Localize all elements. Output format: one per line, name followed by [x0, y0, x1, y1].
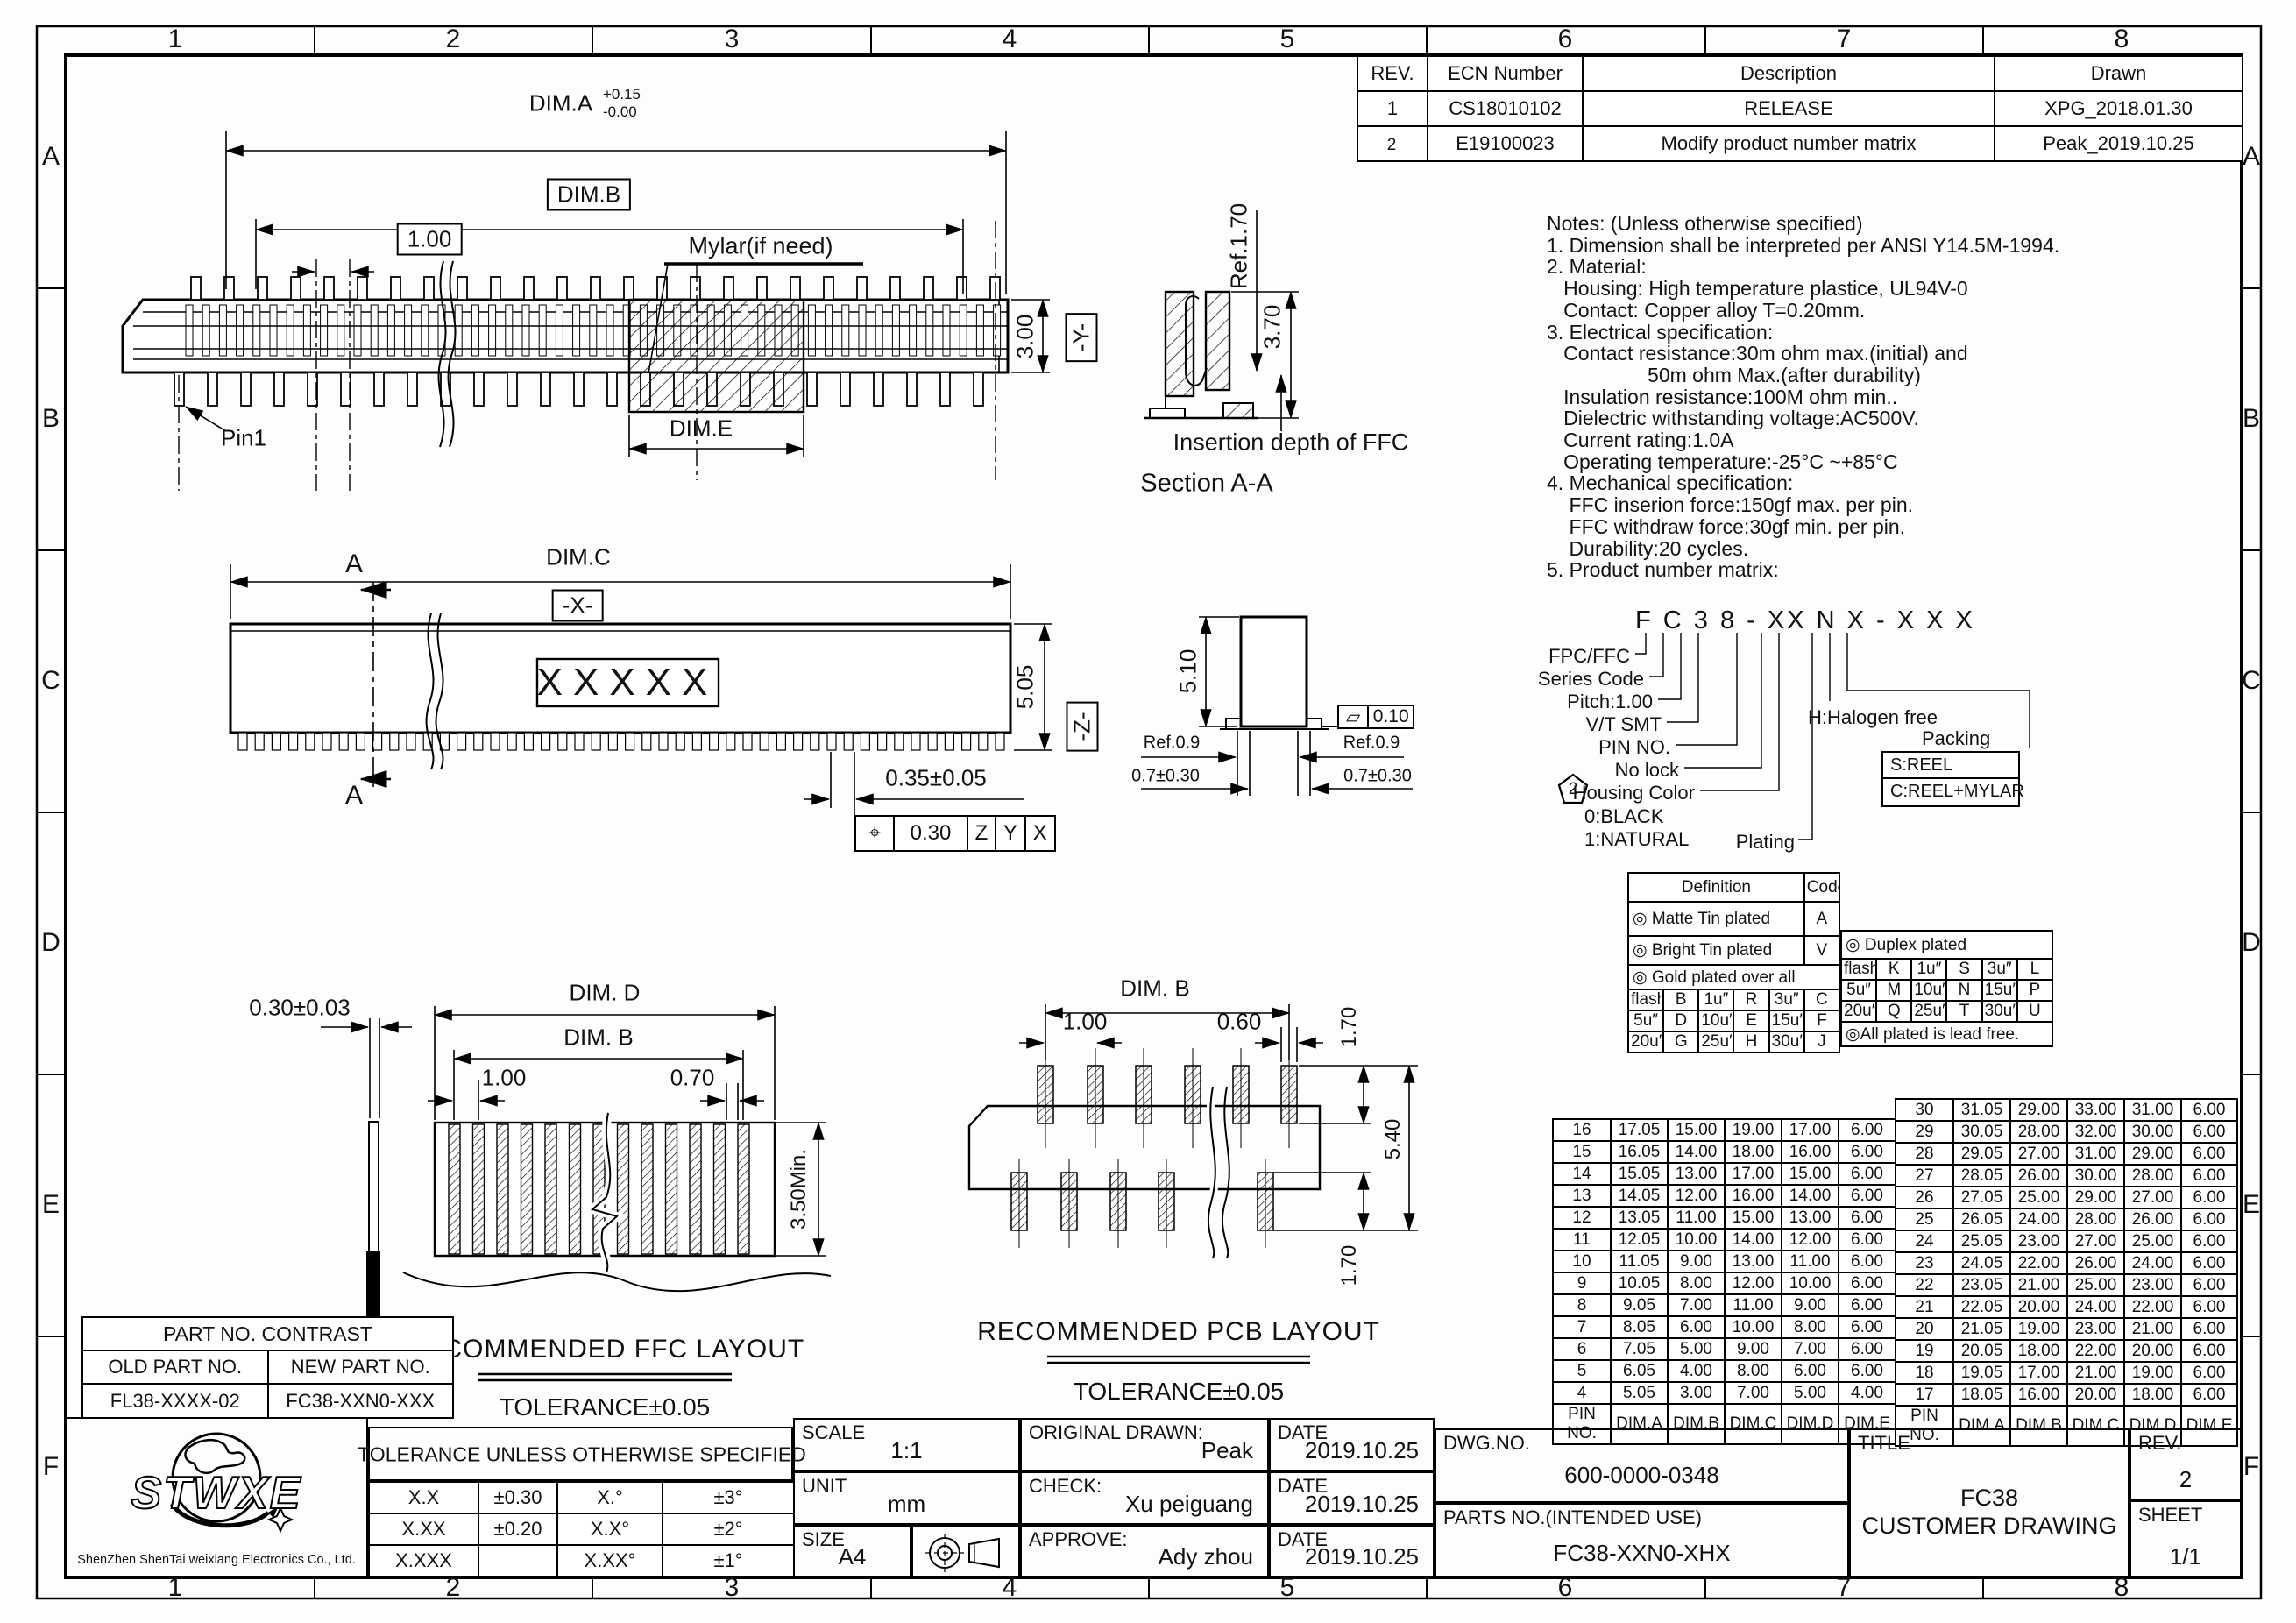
table-cell: 15u″	[1769, 1010, 1804, 1031]
zone-row: D	[41, 928, 60, 958]
check-label: CHECK:	[1029, 1475, 1102, 1498]
table-cell: 3u″	[1769, 989, 1804, 1010]
table-cell: X.XXX	[369, 1545, 478, 1577]
table-cell: 6.00	[2181, 1318, 2237, 1340]
parts-no-label: PARTS NO.(INTENDED USE)	[1443, 1506, 1702, 1529]
table-cell: 15.00	[1668, 1119, 1725, 1141]
table-cell: 17	[1896, 1384, 1953, 1406]
table-cell: 28.00	[2067, 1208, 2124, 1230]
matrix-code: F C 3 8 - XX N X - X X X	[1635, 606, 1975, 635]
revision-rev: 1	[1357, 91, 1428, 126]
pcb-pitch-label: 1.00	[1063, 1009, 1108, 1036]
table-cell: 8	[1553, 1294, 1611, 1316]
matrix-label-packing: Packing	[1922, 727, 1990, 750]
table-cell	[478, 1545, 557, 1577]
table-cell: 23.00	[2124, 1274, 2181, 1296]
note-line: 2. Material:	[1547, 256, 2059, 278]
table-cell: 20.05	[1953, 1340, 2010, 1362]
table-cell: 5	[1553, 1360, 1611, 1382]
note-line: Housing: High temperature plastice, UL94…	[1547, 278, 2059, 300]
revision-ecn: E19100023	[1428, 126, 1583, 161]
matrix-label-halogen: H:Halogen free	[1808, 706, 1938, 729]
flatness-value: 0.10	[1369, 706, 1413, 727]
table-cell: 6.00	[1839, 1272, 1896, 1294]
zone-row: E	[2243, 1190, 2260, 1220]
table-row: 1112.0510.0014.0012.006.00	[1553, 1229, 1896, 1251]
table-cell: 23.05	[1953, 1274, 2010, 1296]
table-cell: 1u″	[1911, 959, 1946, 980]
unit-value: mm	[795, 1491, 1018, 1518]
table-cell: 15u″	[1982, 980, 2017, 1001]
table-cell: 30.00	[2067, 1165, 2124, 1187]
table-cell: 7	[1553, 1316, 1611, 1338]
table-cell: 6.00	[1839, 1163, 1896, 1185]
table-cell: 15.00	[1725, 1207, 1782, 1229]
table-cell: 14.00	[1668, 1141, 1725, 1163]
table-cell: 6.00	[2181, 1143, 2237, 1165]
ffc-tolerance-note: TOLERANCE±0.05	[500, 1393, 711, 1421]
pcb-span-label: 5.40	[1381, 1119, 1406, 1160]
rev-value: 2	[2131, 1466, 2240, 1493]
datum-z-label: -Z-	[1067, 701, 1099, 751]
parts-no-value: FC38-XXN0-XHX	[1436, 1540, 1847, 1567]
table-cell: 6	[1553, 1338, 1611, 1360]
table-cell: 6.00	[1839, 1294, 1896, 1316]
table-cell: C	[1804, 989, 1839, 1010]
table-cell: 6.00	[1839, 1119, 1896, 1141]
top-height-label: 3.00	[1012, 315, 1039, 359]
zone-row: E	[42, 1190, 60, 1220]
table-cell: 12.00	[1725, 1272, 1782, 1294]
table-cell: 16.05	[1611, 1141, 1668, 1163]
table-cell: 12.00	[1668, 1185, 1725, 1207]
table-row: flashB1u″R3u″C	[1628, 989, 1839, 1010]
ffc-min-length-label: 3.50Min.	[787, 1149, 811, 1230]
lead-left-label: 0.7±0.30	[1131, 767, 1200, 787]
table-row: 89.057.0011.009.006.00	[1553, 1294, 1896, 1316]
table-cell: 5.00	[1668, 1338, 1725, 1360]
table-cell: 9.05	[1611, 1294, 1668, 1316]
table-cell: 22.05	[1953, 1296, 2010, 1318]
table-cell: 14.00	[1782, 1185, 1839, 1207]
table-cell: 18.00	[1725, 1141, 1782, 1163]
depth-label: 3.70	[1259, 305, 1286, 350]
table-cell: 24.00	[2067, 1296, 2124, 1318]
matrix-label-housing: Housing Color	[1502, 782, 1695, 804]
dim-c-label: DIM.C	[546, 544, 611, 571]
table-cell: 19.00	[2124, 1362, 2181, 1384]
original-drawn-value: Peak	[1201, 1437, 1253, 1464]
table-cell: 24	[1896, 1230, 1953, 1252]
table-cell: 28.00	[2010, 1121, 2067, 1143]
table-cell: 10u″	[1698, 1010, 1733, 1031]
matrix-pentagon-number: 2	[1569, 780, 1578, 799]
dim-b-label: DIM.B	[547, 179, 631, 211]
revision-desc: RELEASE	[1583, 91, 1995, 126]
approve-label: APPROVE:	[1029, 1528, 1127, 1551]
table-row: E19100023 Modify product number matrix P…	[1357, 126, 2243, 161]
datum-y-label: -Y-	[1066, 313, 1098, 362]
table-cell: J	[1804, 1031, 1839, 1052]
ref-right-label: Ref.0.9	[1343, 734, 1400, 754]
table-cell: 29.00	[2010, 1099, 2067, 1121]
table-cell: 24.00	[2010, 1208, 2067, 1230]
table-cell: 26.00	[2067, 1252, 2124, 1274]
table-cell: 18.00	[2010, 1340, 2067, 1362]
table-cell: N	[1946, 980, 1981, 1001]
table-cell: 6.00	[2181, 1208, 2237, 1230]
table-cell: 6.00	[1839, 1360, 1896, 1382]
table-cell: 21.00	[2010, 1274, 2067, 1296]
table-cell: 5u″	[1628, 1010, 1663, 1031]
table-cell: 8.00	[1782, 1316, 1839, 1338]
pin-dimension-table-left: 1617.0515.0019.0017.006.001516.0514.0018…	[1552, 1118, 1896, 1445]
table-cell: E	[1733, 1010, 1768, 1031]
marking-placeholder: XXXXX	[537, 661, 719, 705]
table-cell: 6.00	[2181, 1296, 2237, 1318]
zone-row: A	[2243, 142, 2260, 172]
insertion-depth-label: Insertion depth of FFC	[1173, 429, 1409, 457]
table-cell: 20.00	[2067, 1384, 2124, 1406]
ffc-pitch-label: 1.00	[482, 1065, 527, 1092]
date-value: 2019.10.25	[1305, 1437, 1419, 1464]
tolerance-title: TOLERANCE UNLESS OTHERWISE SPECIFIED	[358, 1443, 806, 1467]
zone-col: 7	[1837, 25, 1852, 54]
table-cell: 6.00	[2181, 1230, 2237, 1252]
table-row: 3031.0529.0033.0031.006.00	[1896, 1099, 2237, 1121]
table-cell: 18.05	[1953, 1384, 2010, 1406]
note-line: Contact: Copper alloy T=0.20mm.	[1547, 300, 2059, 322]
table-cell: 22	[1896, 1274, 1953, 1296]
dim-a-tol-minus: -0.00	[603, 103, 637, 121]
table-cell: X.XX°	[557, 1545, 663, 1577]
plating-matte-code: A	[1804, 902, 1839, 936]
table-row: flashK1u″S3u″L	[1841, 959, 2052, 980]
table-cell: 5u″	[1841, 980, 1876, 1001]
ffc-dim-d-label: DIM. D	[570, 980, 641, 1007]
table-cell: 5.05	[1611, 1382, 1668, 1404]
table-cell: 1u″	[1698, 989, 1733, 1010]
sheet-value: 1/1	[2131, 1543, 2240, 1570]
revision-desc: Modify product number matrix	[1583, 126, 1995, 161]
pitch-label: 1.00	[397, 223, 463, 256]
table-cell: 6.00	[2181, 1187, 2237, 1208]
table-cell: 6.00	[1782, 1360, 1839, 1382]
plating-bright-code: V	[1804, 936, 1839, 965]
zone-row: F	[2243, 1452, 2259, 1482]
mylar-label: Mylar(if need)	[688, 233, 833, 260]
zone-col: 6	[1558, 25, 1573, 54]
revision-ecn: CS18010102	[1428, 91, 1583, 126]
table-row: 2223.0521.0025.0023.006.00	[1896, 1274, 2237, 1296]
table-cell: 11.05	[1611, 1251, 1668, 1272]
approve-value: Ady zhou	[1159, 1543, 1253, 1570]
zone-col: 3	[725, 25, 740, 54]
plating-code-header: Code	[1804, 873, 1839, 902]
table-cell: 20u″	[1628, 1031, 1663, 1052]
table-cell: 26	[1896, 1187, 1953, 1208]
table-cell: 31.00	[2124, 1099, 2181, 1121]
table-cell: 7.00	[1782, 1338, 1839, 1360]
revision-header: Drawn	[1995, 56, 2243, 91]
table-cell: 6.00	[2181, 1384, 2237, 1406]
table-cell: 17.00	[1725, 1163, 1782, 1185]
drawing-title-line1: FC38	[1851, 1485, 2128, 1512]
table-cell: 6.00	[1839, 1338, 1896, 1360]
table-cell: 9.00	[1668, 1251, 1725, 1272]
note-line: Insulation resistance:100M ohm min..	[1547, 386, 2059, 408]
company-logo-text: STWXE	[131, 1467, 302, 1520]
plating-bright: ◎ Bright Tin plated	[1628, 936, 1804, 965]
table-cell: P	[2017, 980, 2052, 1001]
table-row: 2627.0525.0029.0027.006.00	[1896, 1187, 2237, 1208]
ffc-width-label: 0.70	[670, 1065, 715, 1092]
check-value: Xu peiguang	[1125, 1491, 1253, 1518]
flatness-frame: ▱ 0.10	[1337, 705, 1414, 729]
table-row: 2021.0519.0023.0021.006.00	[1896, 1318, 2237, 1340]
pcb-pad-width-label: 0.60	[1217, 1009, 1262, 1036]
table-cell: 25	[1896, 1208, 1953, 1230]
table-cell: L	[2017, 959, 2052, 980]
table-cell: 12.05	[1611, 1229, 1668, 1251]
table-cell: 22.00	[2067, 1340, 2124, 1362]
date-value: 2019.10.25	[1305, 1543, 1419, 1570]
table-row: X.XXXX.XX°±1°	[369, 1545, 794, 1577]
table-cell: 3u″	[1982, 959, 2017, 980]
table-cell: 8.00	[1668, 1272, 1725, 1294]
cut-label-top: A	[345, 549, 363, 579]
table-cell: 16.00	[1782, 1141, 1839, 1163]
table-cell: T	[1946, 1001, 1981, 1022]
table-cell: 23	[1896, 1252, 1953, 1274]
table-cell: 29.05	[1953, 1143, 2010, 1165]
table-cell: 13.00	[1782, 1207, 1839, 1229]
scale-value: 1:1	[795, 1437, 1018, 1464]
zone-col: 1	[168, 25, 183, 54]
zone-col: 8	[2115, 25, 2129, 54]
table-cell: ±1°	[663, 1545, 794, 1577]
table-cell: 30.05	[1953, 1121, 2010, 1143]
part-contrast-table: PART NO. CONTRAST OLD PART NO. NEW PART …	[81, 1316, 454, 1419]
table-cell: 13.00	[1668, 1163, 1725, 1185]
matrix-label-lock: No lock	[1486, 759, 1679, 782]
ref-left-label: Ref.0.9	[1144, 734, 1200, 754]
packing-option: C:REEL+MYLAR	[1883, 779, 2018, 805]
table-cell: 29.00	[2067, 1187, 2124, 1208]
old-part-header: OLD PART NO.	[82, 1350, 268, 1384]
old-part-value: FL38-XXXX-02	[82, 1384, 268, 1418]
table-cell: 28.05	[1953, 1165, 2010, 1187]
table-cell: 13.00	[1725, 1251, 1782, 1272]
note-line: 50m ohm Max.(after durability)	[1547, 365, 2059, 386]
table-row: 1 CS18010102 RELEASE XPG_2018.01.30	[1357, 91, 2243, 126]
table-cell: 21.00	[2124, 1318, 2181, 1340]
table-cell: 17.05	[1611, 1119, 1668, 1141]
zone-col: 7	[1837, 1573, 1852, 1603]
pcb-layout-linework	[969, 1004, 1418, 1363]
table-cell: 11.00	[1725, 1294, 1782, 1316]
plating-lead-free: ◎All plated is lead free.	[1841, 1022, 2052, 1046]
table-cell: 5.00	[1782, 1382, 1839, 1404]
table-row: X.XX±0.20X.X°±2°	[369, 1513, 794, 1545]
table-cell: 6.00	[2181, 1099, 2237, 1121]
table-row: 20u″G25u″H30u″J	[1628, 1031, 1839, 1052]
table-cell: 16	[1553, 1119, 1611, 1141]
zone-row: A	[42, 142, 60, 172]
pcb-dim-b-label: DIM. B	[1120, 975, 1189, 1003]
table-cell: 19.05	[1953, 1362, 2010, 1384]
table-cell: H	[1733, 1031, 1768, 1052]
table-cell: 20u″	[1841, 1001, 1876, 1022]
position-symbol-icon: ⌖	[856, 817, 895, 850]
size-value: A4	[795, 1543, 910, 1570]
revision-drawn: XPG_2018.01.30	[1995, 91, 2243, 126]
table-cell: 30u″	[1982, 1001, 2017, 1022]
zone-row: C	[2242, 666, 2261, 696]
position-tolerance-value: 0.30	[895, 817, 968, 850]
table-cell: U	[2017, 1001, 2052, 1022]
table-cell: 18	[1896, 1362, 1953, 1384]
table-cell: 27.05	[1953, 1187, 2010, 1208]
table-row: 2728.0526.0030.0028.006.00	[1896, 1165, 2237, 1187]
matrix-label-pitch: Pitch:1.00	[1460, 691, 1653, 713]
table-cell: 10.00	[1668, 1229, 1725, 1251]
new-part-header: NEW PART NO.	[268, 1350, 454, 1384]
table-cell: 26.00	[2010, 1165, 2067, 1187]
table-cell: 6.00	[1839, 1251, 1896, 1272]
table-cell: 17.00	[1782, 1119, 1839, 1141]
table-cell: 26.05	[1953, 1208, 2010, 1230]
table-cell: R	[1733, 989, 1768, 1010]
table-cell: 27.00	[2067, 1230, 2124, 1252]
section-caption: Section A-A	[1140, 470, 1273, 499]
table-cell: 18.00	[2124, 1384, 2181, 1406]
table-cell: 13	[1553, 1185, 1611, 1207]
cut-label-bottom: A	[345, 781, 363, 811]
table-cell: 6.00	[2181, 1252, 2237, 1274]
table-row: 1314.0512.0016.0014.006.00	[1553, 1185, 1896, 1207]
plating-def-header: Definition	[1628, 873, 1804, 902]
note-line: Current rating:1.0A	[1547, 429, 2059, 451]
zone-row: C	[41, 666, 60, 696]
plating-gold: ◎ Gold plated over all	[1628, 965, 1839, 989]
zone-col: 5	[1280, 1573, 1295, 1603]
table-cell: 27.00	[2010, 1143, 2067, 1165]
table-cell: 25.00	[2010, 1187, 2067, 1208]
table-cell: 11.00	[1782, 1251, 1839, 1272]
table-cell: 11	[1553, 1229, 1611, 1251]
table-cell: ±0.20	[478, 1513, 557, 1545]
matrix-label-housing0: 0:BLACK	[1584, 805, 1664, 828]
note-line: 1. Dimension shall be interpreted per AN…	[1547, 235, 2059, 257]
table-row: 1415.0513.0017.0015.006.00	[1553, 1163, 1896, 1185]
table-cell: 9.00	[1782, 1294, 1839, 1316]
table-row: 67.055.009.007.006.00	[1553, 1338, 1896, 1360]
table-cell: 12	[1553, 1207, 1611, 1229]
drawing-sheet: 1 2 3 4 5 6 7 8 1 2 3 4 5 6 7 8 A B C D …	[0, 0, 2296, 1623]
table-cell: 26.00	[2124, 1208, 2181, 1230]
note-line: Operating temperature:-25°C ~+85°C	[1547, 451, 2059, 473]
table-cell: 10u″	[1911, 980, 1946, 1001]
table-row: 56.054.008.006.006.00	[1553, 1360, 1896, 1382]
zone-row: B	[42, 404, 60, 434]
matrix-label-vt: V/T SMT	[1469, 713, 1662, 736]
table-cell: 25.00	[2124, 1230, 2181, 1252]
table-cell: 31.00	[2067, 1143, 2124, 1165]
revision-header: Description	[1583, 56, 1995, 91]
table-cell: 7.00	[1725, 1382, 1782, 1404]
zone-col: 4	[1003, 25, 1017, 54]
table-cell: 28.00	[2124, 1165, 2181, 1187]
packing-option: S:REEL	[1883, 753, 2018, 779]
table-cell: 15.00	[1782, 1163, 1839, 1185]
table-cell: 9.00	[1725, 1338, 1782, 1360]
dim-a-tol-plus: +0.15	[603, 86, 641, 103]
notes-block: Notes: (Unless otherwise specified)1. Di…	[1547, 213, 2059, 581]
table-cell: 25u″	[1698, 1031, 1733, 1052]
rev-label: REV.	[2138, 1432, 2181, 1455]
ffc-layout-title: RECOMMENDED FFC LAYOUT	[405, 1335, 804, 1364]
revision-header: REV.	[1357, 56, 1428, 91]
dim-a-label: DIM.A	[529, 90, 592, 117]
dwg-no-label: DWG.NO.	[1443, 1432, 1530, 1455]
table-cell: 31.05	[1953, 1099, 2010, 1121]
table-row: 1011.059.0013.0011.006.00	[1553, 1251, 1896, 1272]
table-row: 2122.0520.0024.0022.006.00	[1896, 1296, 2237, 1318]
table-cell: B	[1663, 989, 1698, 1010]
table-row: 2829.0527.0031.0029.006.00	[1896, 1143, 2237, 1165]
table-cell: 9	[1553, 1272, 1611, 1294]
position-tolerance-frame: ⌖ 0.30 Z Y X	[854, 815, 1056, 852]
table-cell: 30u″	[1769, 1031, 1804, 1052]
table-row: 1920.0518.0022.0020.006.00	[1896, 1340, 2237, 1362]
pin1-label: Pin1	[221, 425, 266, 452]
zone-col: 3	[725, 1573, 740, 1603]
datum-x-label: -X-	[552, 590, 604, 622]
table-cell: 23.00	[2010, 1230, 2067, 1252]
contact-width-label: 0.35±0.05	[885, 765, 986, 792]
table-cell: 20.00	[2010, 1296, 2067, 1318]
matrix-label-pin: PIN NO.	[1478, 736, 1670, 759]
note-line: 5. Product number matrix:	[1547, 559, 2059, 581]
table-cell: 15	[1553, 1141, 1611, 1163]
table-cell: flash	[1628, 989, 1663, 1010]
table-cell: M	[1876, 980, 1911, 1001]
table-cell: 6.00	[2181, 1121, 2237, 1143]
table-cell: 3.00	[1668, 1382, 1725, 1404]
table-row: 1617.0515.0019.0017.006.00	[1553, 1119, 1896, 1141]
table-cell: 21.00	[2067, 1362, 2124, 1384]
pin-dimension-table-right: 3031.0529.0033.0031.006.002930.0528.0032…	[1895, 1098, 2238, 1447]
table-cell: 6.00	[1839, 1316, 1896, 1338]
ffc-dim-b-label: DIM. B	[563, 1024, 633, 1052]
table-row: 910.058.0012.0010.006.00	[1553, 1272, 1896, 1294]
front-height-label: 5.05	[1012, 665, 1039, 710]
table-cell: 4.00	[1839, 1382, 1896, 1404]
table-cell: X.X°	[557, 1513, 663, 1545]
plating-matte: ◎ Matte Tin plated	[1628, 902, 1804, 936]
note-line: FFC withdraw force:30gf min. per pin.	[1547, 516, 2059, 538]
table-row: 5u″M10u″N15u″P	[1841, 980, 2052, 1001]
table-row: 2324.0522.0026.0024.006.00	[1896, 1252, 2237, 1274]
table-cell: F	[1804, 1010, 1839, 1031]
table-cell: 30	[1896, 1099, 1953, 1121]
original-drawn-label: ORIGINAL DRAWN:	[1029, 1421, 1203, 1444]
table-cell: 19.00	[2010, 1318, 2067, 1340]
table-cell: 12.00	[1782, 1229, 1839, 1251]
table-row: 2930.0528.0032.0030.006.00	[1896, 1121, 2237, 1143]
dim-e-label: DIM.E	[670, 415, 733, 443]
